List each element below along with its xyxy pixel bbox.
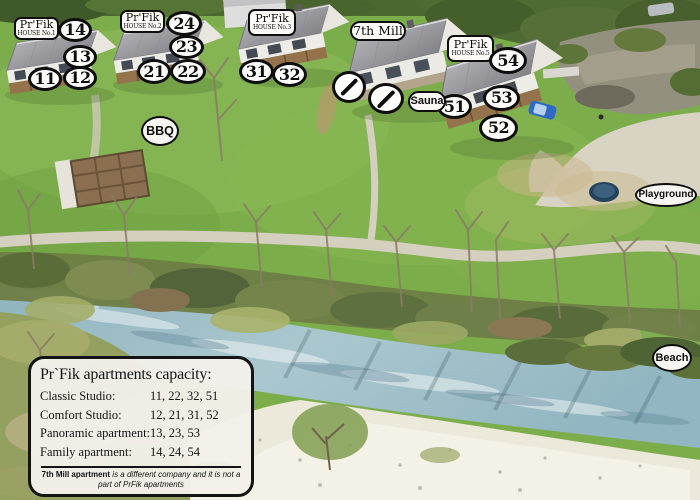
row-units: 11, 22, 32, 51 [150,387,242,406]
slash-bar [340,78,358,96]
house-label-number: HOUSE No.1 [17,30,55,37]
unit-badge-23: 23 [169,35,204,59]
house-label-brand: Pr'Fik [20,20,54,30]
unit-badge-32: 32 [272,62,307,87]
capacity-row-panoramic: Panoramic apartment: 13, 23, 53 [40,424,242,443]
slash-bar [376,89,395,108]
unit-badge-14: 14 [58,18,92,42]
house-label-number: HOUSE No.3 [253,24,291,31]
unit-badge-31: 31 [239,59,274,84]
capacity-row-comfort: Comfort Studio: 12, 21, 31, 52 [40,406,242,425]
house-label-number: HOUSE No.5 [451,50,489,57]
mill-disclaimer-rest: is a different company and it is not a p… [98,470,240,489]
sauna-label: Sauna [408,91,446,112]
house-label-2: Pr'Fik HOUSE No.2 [120,10,165,33]
house-label-3: Pr'Fik HOUSE No.3 [248,9,296,36]
house-label-number: HOUSE No.2 [123,23,161,30]
capacity-row-classic: Classic Studio: 11, 22, 32, 51 [40,387,242,406]
house-label-brand: Pr'Fik [454,40,488,50]
house-label-brand: Pr'Fik [255,14,289,24]
house-label-brand: Pr'Fik [126,13,160,23]
unit-badge-12: 12 [63,66,97,90]
row-label: Classic Studio: [40,387,150,406]
row-label: Family apartment: [40,443,150,462]
unit-badge-22: 22 [170,59,206,84]
trampoline [589,182,619,202]
mill-disclaimer-bold: 7th Mill apartment [42,470,110,479]
unit-badge-21: 21 [137,59,171,84]
row-units: 14, 24, 54 [150,443,242,462]
crossed-out-icon [332,71,366,103]
house-label-5: Pr'Fik HOUSE No.5 [447,35,494,62]
unit-badge-24: 24 [166,11,202,36]
capacity-info-box: Pr`Fik apartments capacity: Classic Stud… [28,356,254,497]
capacity-title: Pr`Fik apartments capacity: [40,364,242,385]
capacity-row-family: Family apartment: 14, 24, 54 [40,443,242,462]
mill-house-label: 7th Mill [350,21,406,41]
row-units: 13, 23, 53 [150,424,242,443]
bbq-label: BBQ [141,116,179,146]
house-label-1: Pr'Fik HOUSE No.1 [14,17,59,40]
divider-line [41,466,241,468]
unit-badge-11: 11 [28,67,62,91]
unit-badge-52: 52 [479,114,518,142]
playground-label: Playground [635,183,697,207]
row-units: 12, 21, 31, 52 [150,406,242,425]
unit-badge-53: 53 [483,85,520,111]
crossed-out-icon [368,83,404,114]
mill-disclaimer: 7th Mill apartment is a different compan… [40,470,242,490]
unit-badge-54: 54 [489,47,527,74]
row-label: Comfort Studio: [40,406,150,425]
row-label: Panoramic apartment: [40,424,150,443]
annotated-aerial-map: Pr'Fik HOUSE No.1 Pr'Fik HOUSE No.2 Pr'F… [0,0,700,500]
beach-label: Beach [652,344,692,372]
